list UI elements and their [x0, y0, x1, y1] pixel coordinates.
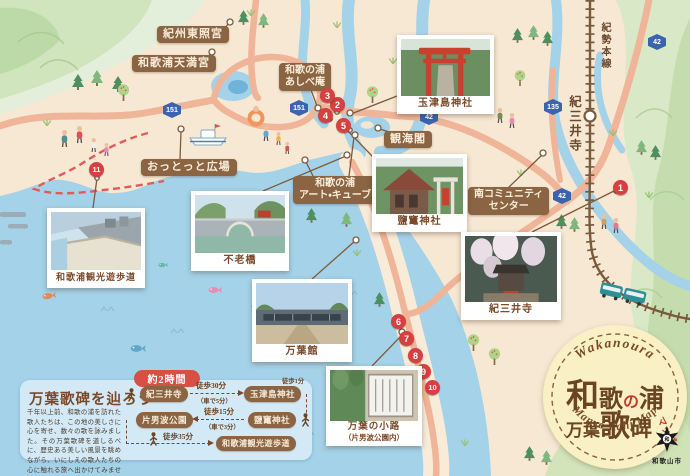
- wakayama-city-credit: 和 和歌山市: [646, 424, 688, 465]
- city-name: 和歌山市: [646, 455, 688, 465]
- monument-marker-10: 10: [425, 380, 440, 395]
- label-minami-community-center: 南コミュニティ センター: [468, 187, 549, 215]
- label-art-cube: 和歌の浦 アート・キューブ: [293, 176, 377, 204]
- photo-caption: 鹽竃神社: [376, 214, 463, 228]
- route-stop-yuhodo: 和歌浦観光遊歩道: [216, 436, 296, 451]
- photo-caption: 和歌浦観光遊歩道: [51, 270, 141, 284]
- monument-marker-3: 3: [320, 88, 335, 103]
- route-stop-kimiidera: 紀三井寺: [140, 386, 188, 402]
- temple-cherry-blossom-illustration: [465, 236, 557, 302]
- photo-manyokan-museum: 万葉館: [252, 279, 352, 362]
- route-connector: [126, 443, 210, 444]
- photo-furobashi-bridge: 不老橋: [191, 191, 289, 271]
- photo-manyo-path: 万葉の小路 （片男波公園内）: [326, 366, 422, 446]
- route-connector: [190, 393, 240, 394]
- promenade-illustration: [51, 212, 141, 270]
- photo-caption: 紀三井寺: [465, 302, 557, 316]
- monument-marker-4: 4: [318, 108, 333, 123]
- route-connector: [196, 419, 244, 420]
- label-ottotto-square: おっとっと広場: [141, 159, 237, 176]
- monument-marker-6: 6: [391, 314, 406, 329]
- route-stop-tamatsushima: 玉津島神社: [244, 386, 301, 402]
- monument-marker-5: 5: [336, 118, 351, 133]
- photo-caption: 不老橋: [195, 253, 285, 267]
- leg-car-3: （車で3分）: [205, 422, 240, 431]
- panel-description: 千年以上前、和歌の浦を訪れた歌人たちは、この地の美しさに心を寄せ、数々の歌を詠み…: [27, 408, 121, 476]
- label-ashibean: 和歌の浦 あしべ庵: [279, 63, 331, 91]
- monument-marker-1: 1: [613, 180, 628, 195]
- label-kishu-toshogu: 紀州東照宮: [157, 26, 229, 43]
- label-kankaikaku: 観海閣: [384, 131, 432, 148]
- label-kisei-main-line: 紀勢本線: [597, 22, 612, 70]
- photo-kimiidera-temple: 紀三井寺: [461, 232, 561, 320]
- wakanoura-manyo-kahi-map: 紀州東照宮 和歌浦天満宮 和歌の浦 あしべ庵 おっとっと広場 観海閣 和歌の浦 …: [0, 0, 690, 476]
- walker-icon: [300, 413, 311, 427]
- station-kimiidera-icon: [585, 111, 596, 122]
- leg-walk-15: 徒歩15分: [204, 406, 234, 417]
- arrowhead: [192, 416, 198, 422]
- leg-car-5: （車で5分）: [197, 396, 232, 405]
- route-stop-kataonami: 片男波公園: [136, 412, 193, 428]
- duration-badge: 約2時間: [134, 370, 200, 387]
- leg-walk-30: 徒歩30分: [196, 380, 226, 391]
- signboard-illustration: [330, 370, 418, 421]
- shrine-building-illustration: [376, 158, 463, 214]
- walker-icon: [126, 388, 137, 402]
- leg-walk-35: 徒歩35分: [163, 431, 193, 442]
- stone-bridge-illustration: [195, 195, 285, 253]
- monument-marker-8: 8: [408, 348, 423, 363]
- walking-course-panel: 約2時間 万葉歌碑を辿ろう 千年以上前、和歌の浦を訪れた歌人たちは、この地の美し…: [20, 380, 312, 460]
- islet: [361, 121, 374, 129]
- photo-wakaura-promenade: 和歌浦観光遊歩道: [47, 208, 145, 288]
- label-kimiidera-station: 紀三井寺: [565, 95, 584, 153]
- label-wakaura-tenmangu: 和歌浦天満宮: [132, 55, 216, 72]
- photo-caption: 万葉の小路 （片男波公園内）: [330, 421, 418, 442]
- photo-shiogama-shrine: 鹽竃神社: [372, 154, 467, 232]
- route-connector: [126, 420, 127, 444]
- photo-tamatsushima-shrine: 玉津島神社: [397, 35, 494, 114]
- city-emblem-star-icon: 和: [652, 424, 682, 454]
- monument-marker-11: 11: [89, 162, 104, 177]
- monument-marker-7: 7: [399, 331, 414, 346]
- photo-caption: 玉津島神社: [401, 96, 490, 110]
- emblem-character: 和: [663, 436, 669, 443]
- leg-walk-1: 徒歩1分: [282, 376, 304, 385]
- photo-caption: 万葉館: [256, 344, 348, 358]
- walker-icon: [148, 432, 159, 446]
- route-stop-shiogama: 鹽竃神社: [248, 412, 296, 428]
- arrowhead: [208, 440, 214, 446]
- museum-building-illustration: [256, 283, 348, 344]
- torii-gate-illustration: [401, 39, 490, 96]
